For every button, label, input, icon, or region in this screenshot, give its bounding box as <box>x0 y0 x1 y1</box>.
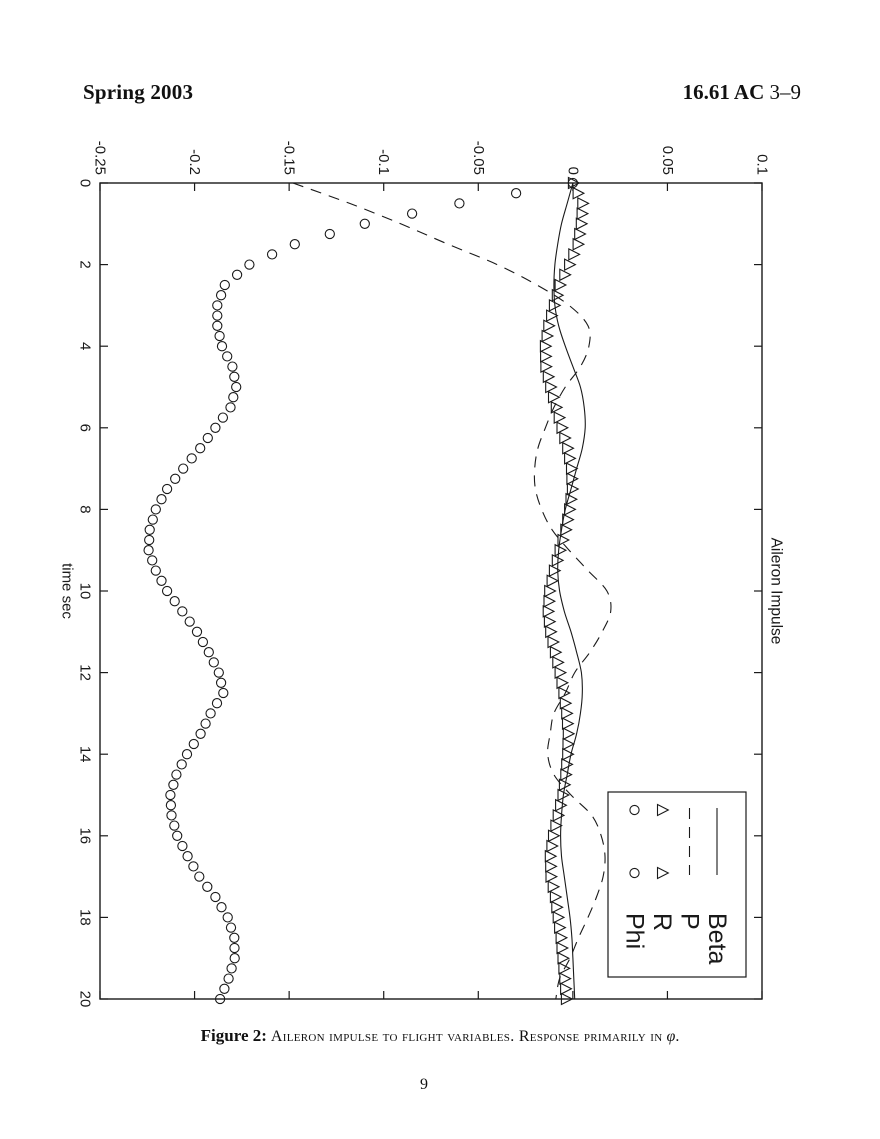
y-tick-label: -0.05 <box>470 141 487 175</box>
data-point-circle <box>213 321 222 330</box>
data-point-triangle <box>573 188 584 199</box>
data-point-triangle <box>550 892 561 903</box>
data-point-circle <box>203 882 212 891</box>
data-point-triangle <box>561 983 572 994</box>
data-point-triangle <box>565 453 576 464</box>
data-point-circle <box>148 515 157 524</box>
data-point-circle <box>178 841 187 850</box>
data-point-circle <box>219 688 228 697</box>
data-point-triangle <box>560 433 571 444</box>
data-point-circle <box>162 484 171 493</box>
data-point-circle <box>230 372 239 381</box>
data-point-circle <box>226 923 235 932</box>
data-point-circle <box>145 535 154 544</box>
data-point-triangle <box>541 351 552 362</box>
data-point-triangle <box>563 718 574 729</box>
legend-label-p: P <box>676 913 704 930</box>
data-point-circle <box>166 790 175 799</box>
data-point-circle <box>192 627 201 636</box>
data-point-circle <box>215 331 224 340</box>
data-point-circle <box>227 964 236 973</box>
header-course-code: 16.61 AC 3–9 <box>683 80 801 105</box>
data-point-triangle <box>555 667 566 678</box>
data-point-circle <box>151 566 160 575</box>
data-point-circle <box>196 729 205 738</box>
aileron-impulse-chart: 02468101214161820-0.25-0.2-0.15-0.1-0.05… <box>60 138 790 1008</box>
data-point-circle <box>144 546 153 555</box>
data-point-triangle <box>550 647 561 658</box>
data-point-circle <box>220 984 229 993</box>
data-point-circle <box>218 413 227 422</box>
data-point-circle <box>167 811 176 820</box>
figure-caption-text: Aileron impulse to flight variables. Res… <box>271 1028 663 1045</box>
data-point-circle <box>148 556 157 565</box>
series-phi <box>144 178 578 1003</box>
data-point-circle <box>267 250 276 259</box>
data-point-triangle <box>578 198 589 209</box>
data-point-triangle <box>542 331 553 342</box>
data-point-triangle <box>555 545 566 556</box>
data-point-circle <box>196 444 205 453</box>
data-point-triangle <box>567 484 578 495</box>
data-point-triangle <box>558 953 569 964</box>
data-point-triangle <box>553 657 564 668</box>
y-tick-label: 0.05 <box>659 146 676 175</box>
data-point-circle <box>224 974 233 983</box>
data-point-triangle <box>543 606 554 617</box>
caption-period: . <box>675 1028 679 1045</box>
data-point-circle <box>179 464 188 473</box>
data-point-circle <box>157 495 166 504</box>
data-point-triangle <box>544 616 555 627</box>
data-point-circle <box>232 270 241 279</box>
data-point-circle <box>223 352 232 361</box>
figure-caption: Figure 2: Aileron impulse to flight vari… <box>0 1026 880 1046</box>
data-point-triangle <box>557 422 568 433</box>
data-point-circle <box>408 209 417 218</box>
data-point-triangle <box>565 259 576 270</box>
series-beta <box>554 183 585 999</box>
data-point-triangle <box>577 208 588 219</box>
data-point-circle <box>217 342 226 351</box>
data-point-circle <box>170 821 179 830</box>
data-point-triangle <box>549 830 560 841</box>
data-point-triangle <box>553 912 564 923</box>
series-p <box>293 183 611 999</box>
data-point-circle <box>183 852 192 861</box>
data-point-circle <box>170 597 179 606</box>
header-course: 16.61 AC <box>683 80 765 104</box>
data-point-triangle <box>560 698 571 709</box>
data-point-triangle <box>576 218 587 229</box>
data-point-circle <box>178 607 187 616</box>
data-point-circle <box>226 403 235 412</box>
data-point-triangle <box>563 728 574 739</box>
data-point-circle <box>216 291 225 300</box>
data-point-triangle <box>545 586 556 597</box>
data-point-triangle <box>569 249 580 260</box>
data-point-circle <box>189 862 198 871</box>
header-term: Spring 2003 <box>83 80 193 105</box>
data-point-circle <box>455 199 464 208</box>
data-point-circle <box>290 240 299 249</box>
data-point-triangle <box>560 269 571 280</box>
data-point-circle <box>512 189 521 198</box>
data-point-circle <box>232 382 241 391</box>
data-point-circle <box>213 311 222 320</box>
data-point-circle <box>198 637 207 646</box>
data-point-triangle <box>556 932 567 943</box>
data-point-circle <box>204 648 213 657</box>
data-point-triangle <box>555 280 566 291</box>
data-point-circle <box>185 617 194 626</box>
x-tick-label: 10 <box>77 583 94 600</box>
x-tick-label: 18 <box>77 909 94 926</box>
data-point-triangle <box>560 973 571 984</box>
chart-title: Aileron Impulse <box>768 538 785 645</box>
data-point-circle <box>189 739 198 748</box>
data-point-circle <box>201 719 210 728</box>
x-tick-label: 12 <box>77 664 94 681</box>
x-tick-label: 8 <box>77 505 94 513</box>
data-point-circle <box>325 229 334 238</box>
data-point-circle <box>217 903 226 912</box>
data-point-triangle <box>546 871 557 882</box>
data-point-triangle <box>556 800 567 811</box>
data-point-circle <box>173 831 182 840</box>
data-point-triangle <box>545 851 556 862</box>
x-tick-label: 6 <box>77 424 94 432</box>
data-point-triangle <box>563 443 574 454</box>
data-point-triangle <box>555 922 566 933</box>
data-point-triangle <box>575 229 586 240</box>
data-point-circle <box>177 760 186 769</box>
data-point-circle <box>220 280 229 289</box>
data-point-circle <box>209 658 218 667</box>
data-point-circle <box>187 454 196 463</box>
data-point-triangle <box>549 392 560 403</box>
data-point-circle <box>230 933 239 942</box>
data-point-triangle <box>547 575 558 586</box>
data-point-circle <box>223 913 232 922</box>
legend-label-phi: Phi <box>621 913 649 949</box>
data-point-triangle <box>557 677 568 688</box>
data-point-triangle <box>551 402 562 413</box>
x-tick-label: 16 <box>77 827 94 844</box>
data-point-triangle <box>540 341 551 352</box>
data-point-triangle <box>548 637 559 648</box>
data-point-circle <box>151 505 160 514</box>
data-point-circle <box>169 780 178 789</box>
data-point-triangle <box>541 361 552 372</box>
data-point-circle <box>230 954 239 963</box>
y-tick-label: 0 <box>564 167 581 175</box>
data-point-triangle <box>546 861 557 872</box>
x-tick-label: 0 <box>77 179 94 187</box>
data-point-circle <box>211 892 220 901</box>
data-point-circle <box>172 770 181 779</box>
data-point-circle <box>166 801 175 810</box>
rotated-figure-container: 02468101214161820-0.25-0.2-0.15-0.1-0.05… <box>60 138 790 1008</box>
data-point-triangle <box>546 382 557 393</box>
data-point-circle <box>216 678 225 687</box>
x-tick-label: 20 <box>77 991 94 1008</box>
data-point-circle <box>206 709 215 718</box>
y-tick-label: -0.25 <box>92 141 109 175</box>
data-point-triangle <box>562 759 573 770</box>
data-point-triangle <box>548 881 559 892</box>
data-point-circle <box>212 699 221 708</box>
data-point-triangle <box>549 565 560 576</box>
data-point-triangle <box>554 412 565 423</box>
data-point-triangle <box>543 371 554 382</box>
data-point-triangle <box>546 626 557 637</box>
legend-label-beta: Beta <box>703 913 731 965</box>
x-tick-label: 4 <box>77 342 94 350</box>
data-point-circle <box>214 668 223 677</box>
data-point-circle <box>213 301 222 310</box>
data-point-triangle <box>562 708 573 719</box>
data-point-circle <box>211 423 220 432</box>
y-tick-label: -0.15 <box>281 141 298 175</box>
data-point-circle <box>229 393 238 402</box>
data-point-circle <box>162 586 171 595</box>
y-tick-label: -0.2 <box>186 149 203 175</box>
data-point-circle <box>157 576 166 585</box>
x-tick-label: 2 <box>77 260 94 268</box>
data-point-circle <box>230 943 239 952</box>
data-point-triangle <box>544 596 555 607</box>
x-axis-label: time sec <box>60 563 76 619</box>
figure-caption-label: Figure 2: <box>201 1026 267 1045</box>
data-point-circle <box>195 872 204 881</box>
data-point-circle <box>171 474 180 483</box>
legend-label-r: R <box>648 913 676 931</box>
data-point-triangle <box>557 943 568 954</box>
data-point-triangle <box>544 320 555 331</box>
data-point-circle <box>360 219 369 228</box>
data-point-triangle <box>547 841 558 852</box>
data-point-circle <box>228 362 237 371</box>
data-point-circle <box>245 260 254 269</box>
data-point-triangle <box>551 820 562 831</box>
data-point-triangle <box>552 902 563 913</box>
data-point-circle <box>145 525 154 534</box>
legend: BetaPRPhi <box>608 792 746 977</box>
data-point-triangle <box>553 810 564 821</box>
document-page: Spring 2003 16.61 AC 3–9 024681012141618… <box>0 0 880 1139</box>
data-point-triangle <box>559 688 570 699</box>
y-tick-label: 0.1 <box>754 154 771 175</box>
data-point-circle <box>203 433 212 442</box>
data-point-triangle <box>573 239 584 250</box>
data-point-circle <box>182 750 191 759</box>
x-tick-label: 14 <box>77 746 94 763</box>
page-number: 9 <box>0 1076 848 1094</box>
header-page-range: 3–9 <box>770 80 802 104</box>
y-tick-label: -0.1 <box>375 149 392 175</box>
